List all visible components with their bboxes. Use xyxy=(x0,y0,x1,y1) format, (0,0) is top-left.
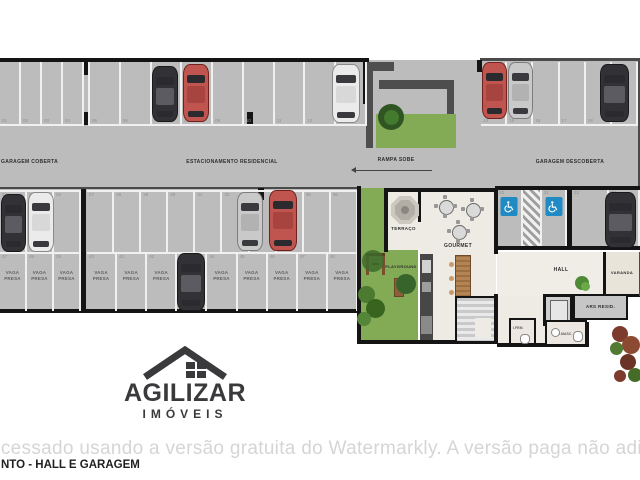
chair xyxy=(480,207,484,211)
agilizar-logo: AGILIZAR IMÓVEIS xyxy=(100,346,270,421)
chair xyxy=(461,207,465,211)
space-number: 44 xyxy=(209,255,214,260)
parking-space: 16 xyxy=(533,62,559,124)
parking-space: 11 xyxy=(275,62,306,124)
parking-space: 36 xyxy=(331,192,358,254)
car-dark xyxy=(1,194,26,252)
elevator-cab xyxy=(550,300,568,321)
space-number: 21 xyxy=(544,191,549,196)
wall xyxy=(384,188,497,192)
bathroom: I.FEM. xyxy=(509,318,536,345)
parking-space: 45VAGAPRESA xyxy=(238,254,268,311)
parking-row: 40VAGAPRESA 41VAGAPRESA 42VAGAPRESA 43 4… xyxy=(87,252,358,311)
space-number: 09 xyxy=(215,119,220,124)
parking-space: 10 xyxy=(244,62,275,124)
space-number: 10 xyxy=(246,119,251,124)
parking-space: 01 xyxy=(0,62,21,124)
logo-segment: IMÓVEIS xyxy=(100,407,270,421)
stove xyxy=(422,282,431,292)
stool xyxy=(449,262,454,267)
car-dark xyxy=(152,66,178,122)
space-number: 06 xyxy=(123,119,128,124)
room-label-hall: HALL xyxy=(551,268,571,273)
no-parking-hatch xyxy=(523,190,542,248)
bush xyxy=(614,370,626,382)
bathroom: I.MASC. xyxy=(545,320,587,346)
accessible-sign xyxy=(545,197,562,216)
parking-space: 27 xyxy=(87,192,114,254)
bush xyxy=(622,336,640,354)
space-number: 46 xyxy=(270,255,275,260)
bush xyxy=(610,342,623,355)
parking-space: 03 xyxy=(42,62,63,124)
room-label: ARS RESID. xyxy=(575,305,626,310)
vaga-presa-label: VAGAPRESA xyxy=(268,270,296,282)
bush xyxy=(357,312,371,326)
sink xyxy=(422,260,431,273)
space-number: 22 xyxy=(574,191,579,196)
space-number: 28 xyxy=(116,193,121,198)
parking-space-accessible: 21 xyxy=(542,190,567,248)
stool xyxy=(449,276,454,281)
car-red xyxy=(482,62,507,119)
parking-space: 02 xyxy=(21,62,42,124)
vaga-presa-label: VAGAPRESA xyxy=(87,270,115,282)
space-number: 03 xyxy=(44,119,49,124)
parking-space: 39VAGAPRESA xyxy=(54,254,81,311)
stair-landing xyxy=(475,318,491,338)
space-number: 12 xyxy=(307,119,312,124)
wheelchair-icon xyxy=(503,200,515,213)
tree xyxy=(362,250,384,272)
space-number: 05 xyxy=(92,119,97,124)
space-number: 04 xyxy=(65,119,70,124)
room-label-gourmet: GOURMET xyxy=(441,244,475,249)
room-label: I.MASC. xyxy=(559,332,573,336)
parking-space: 31 xyxy=(195,192,222,254)
fridge xyxy=(421,316,432,334)
parking-space: 38VAGAPRESA xyxy=(27,254,54,311)
parking-space: 05 xyxy=(90,62,121,124)
chair xyxy=(456,220,460,224)
vaga-presa-label: VAGAPRESA xyxy=(147,270,175,282)
space-number: 30 xyxy=(170,193,175,198)
pergola-table xyxy=(401,206,409,214)
vaga-presa-label: VAGAPRESA xyxy=(207,270,235,282)
car-white xyxy=(332,64,360,123)
area-label-garagem-descoberta: GARAGEM DESCOBERTA xyxy=(534,160,606,165)
sink xyxy=(551,328,560,337)
space-number: 01 xyxy=(2,119,7,124)
chair xyxy=(453,204,457,208)
vaga-presa-label: VAGAPRESA xyxy=(27,270,52,282)
stool xyxy=(449,290,454,295)
car-white xyxy=(28,192,54,252)
car-dark xyxy=(600,64,629,122)
wall xyxy=(0,187,358,189)
vaga-presa-label: VAGAPRESA xyxy=(0,270,25,282)
wall xyxy=(81,189,86,311)
parking-row: 05 06 07 08 09 10 11 12 13 xyxy=(88,62,367,126)
space-number: 42 xyxy=(149,255,154,260)
parking-space: 35 xyxy=(304,192,331,254)
parking-row: 37VAGAPRESA 38VAGAPRESA 39VAGAPRESA xyxy=(0,252,81,311)
ramp-wall xyxy=(379,80,454,89)
space-number: 17 xyxy=(562,119,567,124)
room-label: I.FEM. xyxy=(513,326,524,330)
parking-space: 40VAGAPRESA xyxy=(87,254,117,311)
space-number: 47 xyxy=(300,255,305,260)
floor-plan: GARAGEM COBERTA ESTACIONAMENTO RESIDENCI… xyxy=(0,0,640,480)
round-table xyxy=(439,200,454,215)
space-number: 31 xyxy=(197,193,202,198)
area-label-estacionamento: ESTACIONAMENTO RESIDENCIAL xyxy=(182,160,282,165)
car-silver xyxy=(237,192,263,251)
chair xyxy=(466,229,470,233)
space-number: 38 xyxy=(29,255,34,260)
space-number: 32 xyxy=(224,193,229,198)
wheelchair-icon xyxy=(548,200,560,213)
car-red xyxy=(183,64,209,122)
vaga-presa-label: VAGAPRESA xyxy=(328,270,356,282)
logo-brand-name: AGILIZAR xyxy=(100,380,270,406)
parking-space: 42VAGAPRESA xyxy=(147,254,177,311)
chair xyxy=(447,229,451,233)
tree xyxy=(396,274,416,294)
bush xyxy=(628,368,640,382)
vaga-presa-label: VAGAPRESA xyxy=(117,270,145,282)
house-roof-icon xyxy=(139,346,231,380)
vaga-presa-label: VAGAPRESA xyxy=(54,270,79,282)
chair xyxy=(443,195,447,199)
space-number: 11 xyxy=(277,119,282,124)
parking-row: 27 28 29 30 31 32 33 34 35 36 xyxy=(87,190,358,254)
chair xyxy=(470,198,474,202)
parking-space: 41VAGAPRESA xyxy=(117,254,147,311)
parking-space: 06 xyxy=(121,62,152,124)
parking-space-accessible: 20 xyxy=(497,190,523,248)
ars-resid-room: ARS RESID. xyxy=(573,294,628,320)
plant xyxy=(581,282,590,291)
parking-space: 26 xyxy=(54,192,81,254)
space-number: 26 xyxy=(56,193,61,198)
round-table xyxy=(466,203,481,218)
space-number: 16 xyxy=(535,119,540,124)
wall xyxy=(603,252,606,296)
wall xyxy=(480,58,640,61)
parking-space: 47VAGAPRESA xyxy=(298,254,328,311)
wood-island xyxy=(455,255,471,301)
area-label-garagem-coberta: GARAGEM COBERTA xyxy=(1,160,58,165)
parking-space: 30 xyxy=(168,192,195,254)
space-number: 48 xyxy=(330,255,335,260)
space-number: 18 xyxy=(588,119,593,124)
car-red xyxy=(269,190,297,251)
parking-space: 28 xyxy=(114,192,141,254)
toilet xyxy=(573,331,583,342)
vaga-presa-label: VAGAPRESA xyxy=(238,270,266,282)
space-number: 39 xyxy=(56,255,61,260)
accessible-sign xyxy=(501,197,518,216)
space-number: 27 xyxy=(89,193,94,198)
chair xyxy=(443,214,447,218)
space-number: 37 xyxy=(2,255,7,260)
toilet xyxy=(520,334,530,344)
space-number: 14 xyxy=(483,119,488,124)
chair xyxy=(470,217,474,221)
space-number: 45 xyxy=(240,255,245,260)
car-silver xyxy=(508,62,533,119)
space-number: 29 xyxy=(143,193,148,198)
room-label-terraco: TERRAÇO xyxy=(387,227,420,232)
parking-space: 46VAGAPRESA xyxy=(268,254,298,311)
parking-space: 29 xyxy=(141,192,168,254)
tree xyxy=(384,110,399,125)
space-number: 36 xyxy=(333,193,338,198)
ramp-wall xyxy=(366,62,373,148)
space-number: 41 xyxy=(119,255,124,260)
ramp-arrow-line xyxy=(352,170,432,171)
space-number: 35 xyxy=(306,193,311,198)
vaga-presa-label: VAGAPRESA xyxy=(298,270,326,282)
arrow-left-icon xyxy=(348,167,356,173)
space-number: 02 xyxy=(23,119,28,124)
area-label-rampa-sobe: RAMPA SOBE xyxy=(360,158,432,163)
space-number: 20 xyxy=(499,191,504,196)
space-number: 40 xyxy=(89,255,94,260)
parking-space: 04 xyxy=(63,62,84,124)
foliage xyxy=(610,324,640,388)
wall xyxy=(494,188,498,254)
room-label-playground: PLAYGROUND xyxy=(383,265,419,269)
car-dark xyxy=(605,192,636,248)
parking-space: 37VAGAPRESA xyxy=(0,254,27,311)
watermark-text: ocessado usando a versão gratuita do Wat… xyxy=(0,438,640,460)
wall xyxy=(384,190,388,252)
parking-space: 09 xyxy=(213,62,244,124)
parking-space: 44VAGAPRESA xyxy=(207,254,237,311)
chair xyxy=(434,204,438,208)
parking-space: 22 xyxy=(572,190,609,248)
parking-space: 17 xyxy=(560,62,586,124)
parking-row: 01 02 03 04 xyxy=(0,62,84,126)
page-footer-label: NTO - HALL E GARAGEM xyxy=(1,459,140,471)
car-dark xyxy=(177,253,205,311)
space-number: 15 xyxy=(509,119,514,124)
parking-space: 48VAGAPRESA xyxy=(328,254,358,311)
room-label-varanda: VARANDA xyxy=(607,271,637,275)
round-table xyxy=(452,225,467,240)
